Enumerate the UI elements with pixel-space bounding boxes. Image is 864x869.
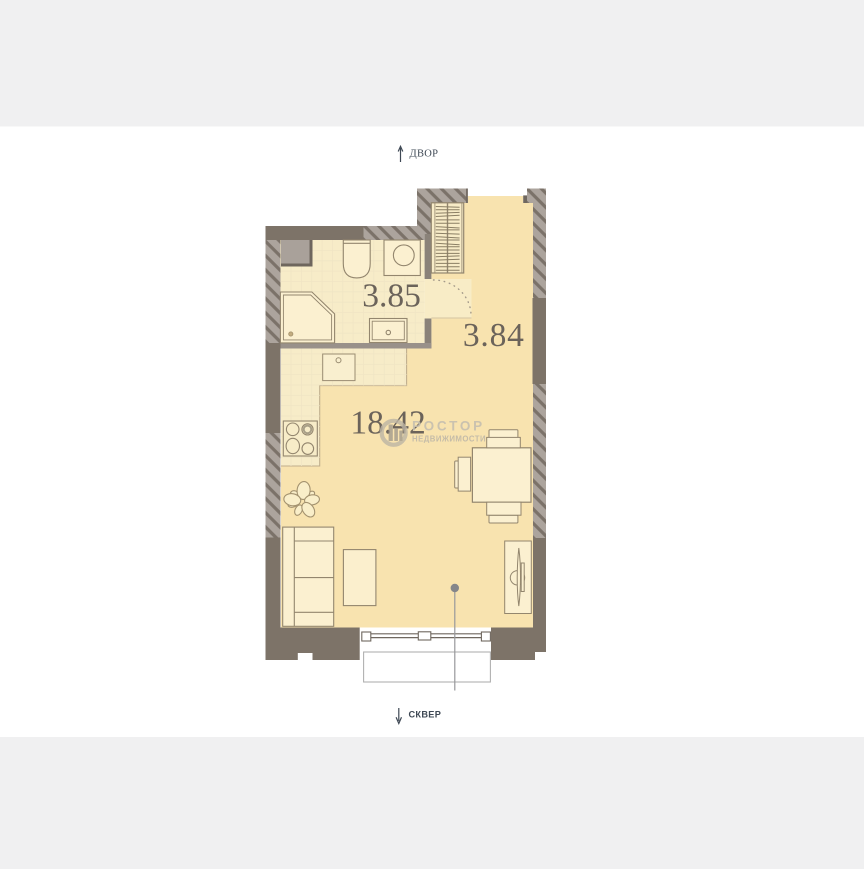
svg-text:СКВЕР: СКВЕР <box>409 710 442 720</box>
svg-text:3.85: 3.85 <box>362 278 421 315</box>
svg-text:3.84: 3.84 <box>463 317 525 354</box>
svg-text:ДВОР: ДВОР <box>410 149 439 160</box>
svg-text:НЕДВИЖИМОСТИ: НЕДВИЖИМОСТИ <box>412 434 486 443</box>
svg-text:РОСТОР: РОСТОР <box>412 419 485 434</box>
